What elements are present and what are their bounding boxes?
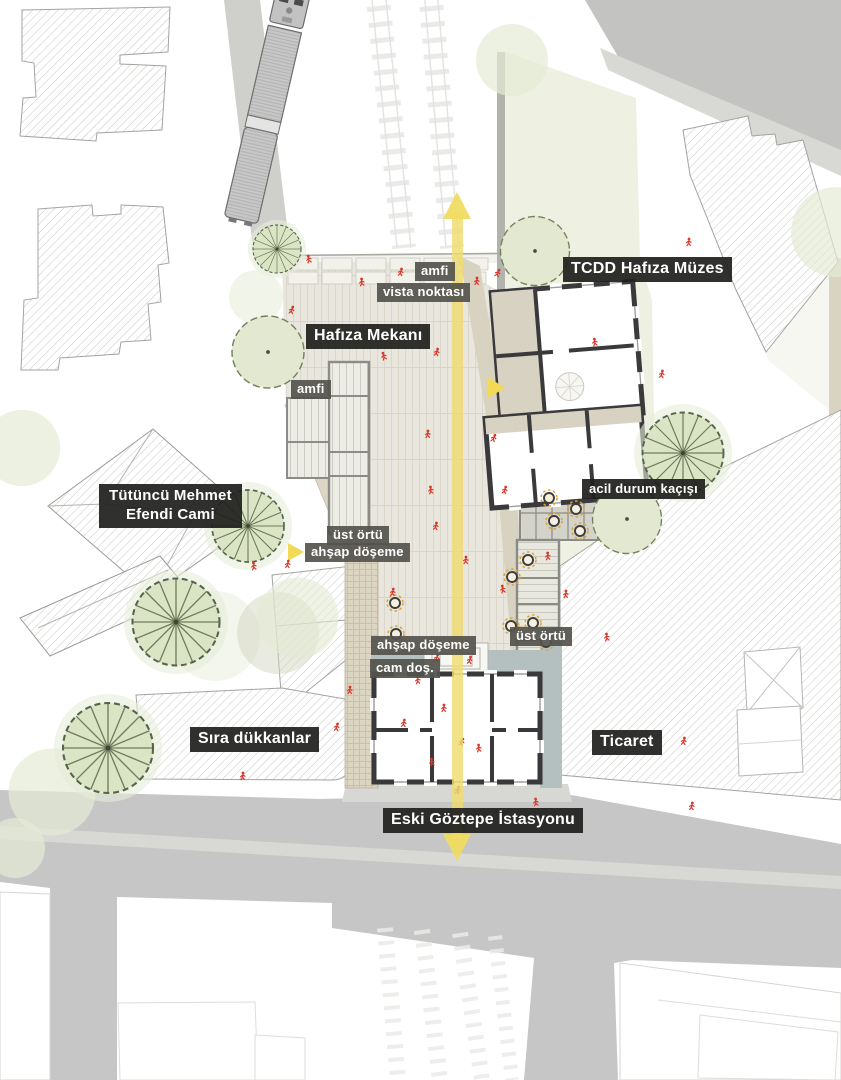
site-plan: amfi vista noktası TCDD Hafıza Müzes Haf… — [0, 0, 841, 1080]
label-amfi-left: amfi — [291, 380, 331, 399]
label-vista-noktasi: vista noktası — [377, 283, 470, 302]
label-ahsap-doseme-lower: ahşap döşeme — [371, 636, 476, 655]
label-amfi-top: amfi — [415, 262, 455, 281]
museum-building — [475, 277, 654, 512]
label-ahsap-doseme-upper: ahşap döşeme — [305, 543, 410, 562]
railway-bottom — [385, 928, 512, 1080]
label-istasyon: Eski Göztepe İstasyonu — [383, 808, 583, 833]
label-cami-line2: Efendi Cami — [109, 506, 232, 525]
label-cami: Tütüncü Mehmet Efendi Cami — [99, 484, 242, 528]
label-cam-dos: cam doş. — [370, 659, 440, 678]
axis-arrow-up-icon — [443, 192, 471, 219]
building-left — [21, 205, 169, 370]
label-tcdd-muzesi: TCDD Hafıza Müzes — [563, 257, 732, 282]
label-acil-durum: acil durum kaçışı — [582, 479, 705, 499]
label-cami-line1: Tütüncü Mehmet — [109, 487, 232, 506]
building-top-left — [20, 7, 170, 141]
label-ust-ortu-right: üst örtü — [510, 627, 572, 646]
site-plan-canvas — [0, 0, 841, 1080]
plaza-entry-arrow-icon — [288, 543, 304, 561]
label-sira-dukkanlar: Sıra dükkanlar — [190, 727, 319, 752]
label-hafiza-mekani: Hafıza Mekanı — [306, 324, 430, 349]
label-ticaret: Ticaret — [592, 730, 662, 755]
